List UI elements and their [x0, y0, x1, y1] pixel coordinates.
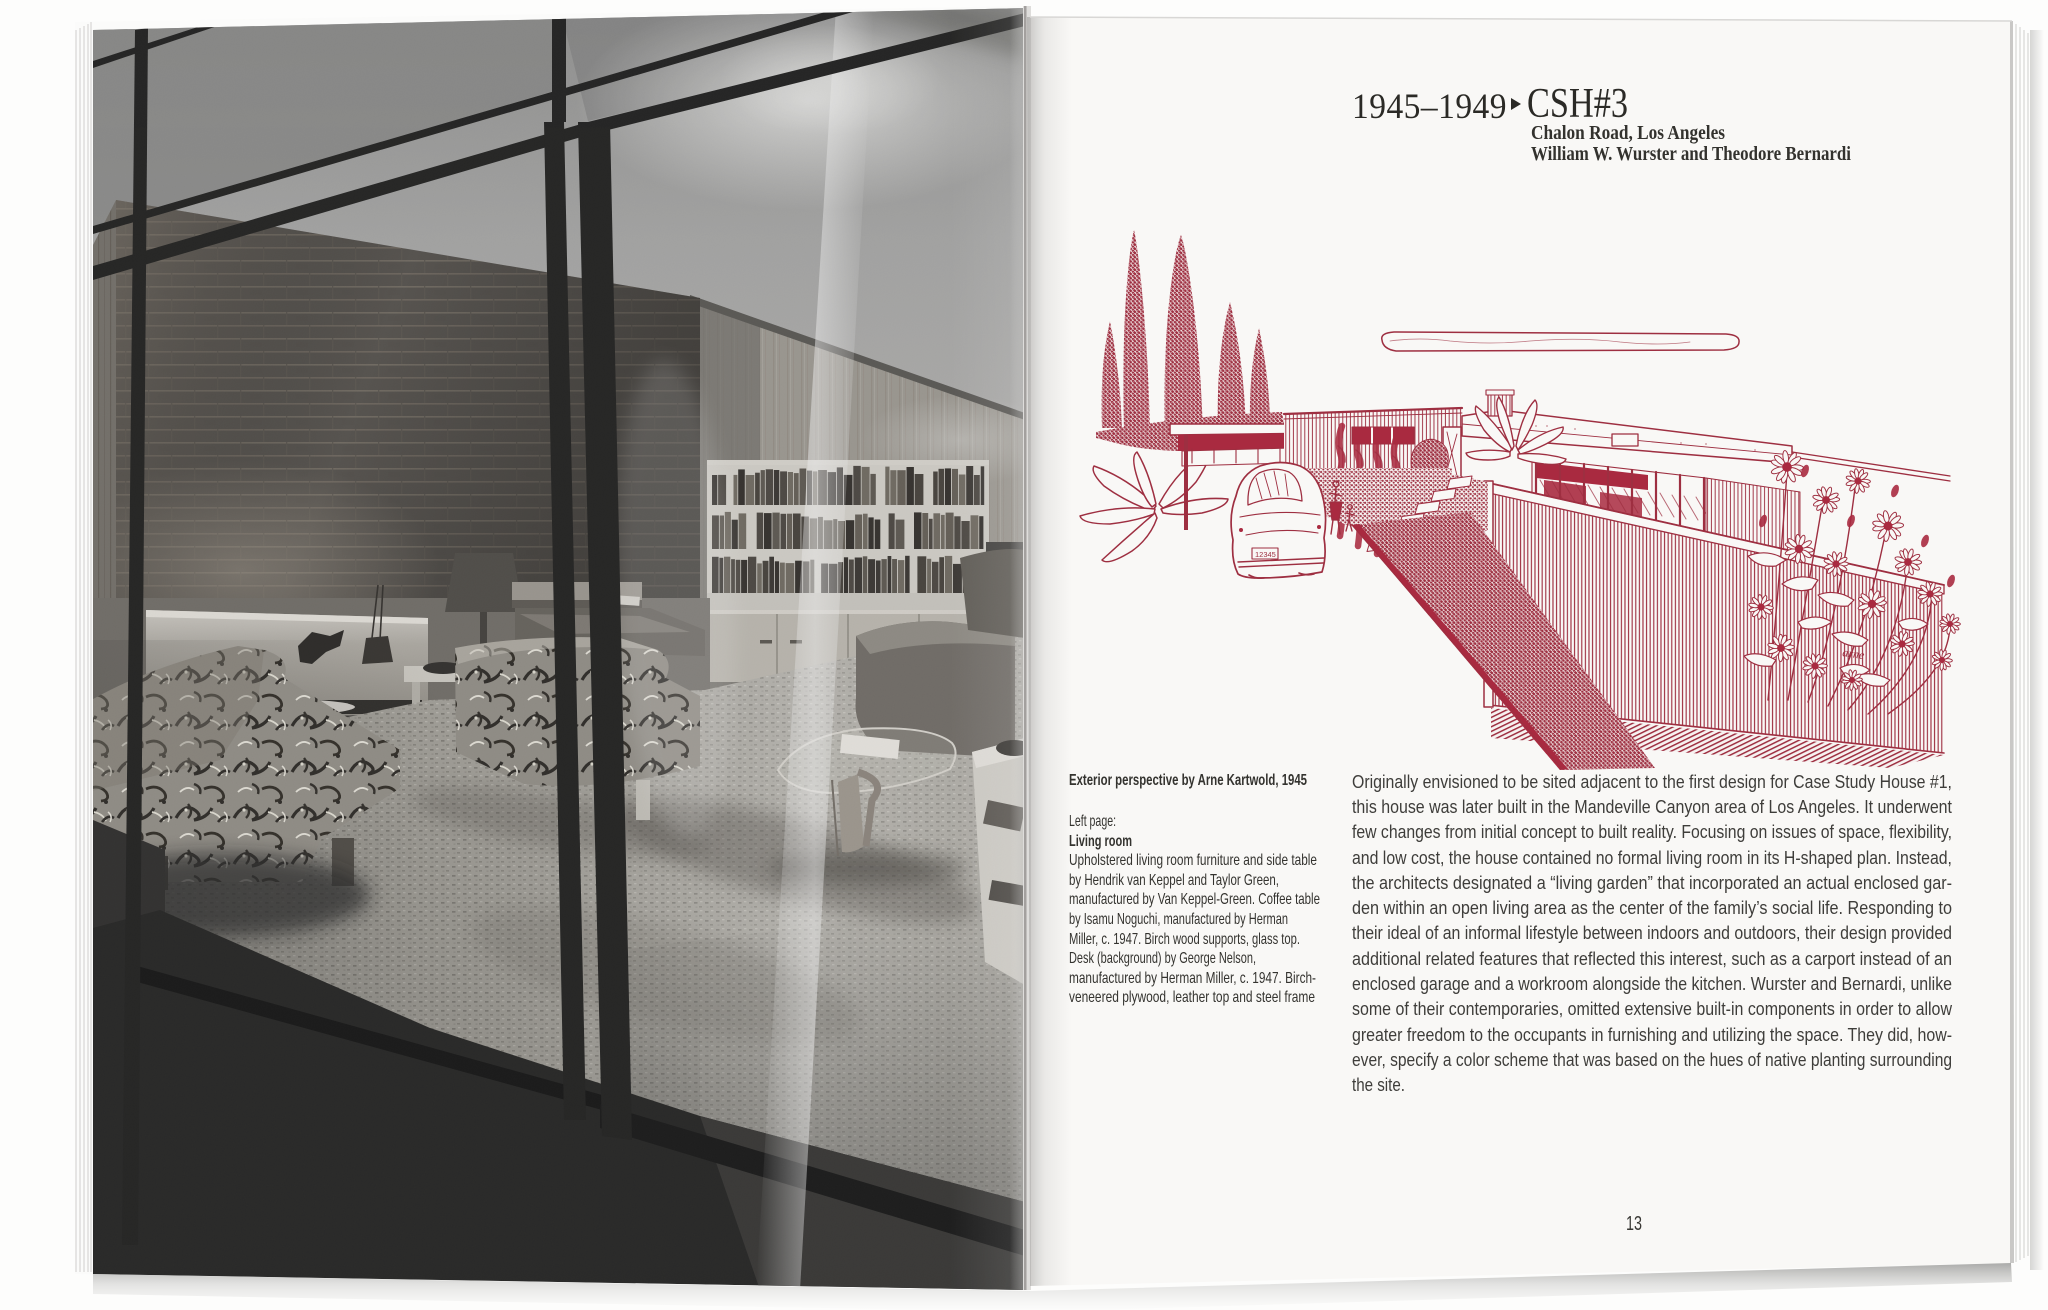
svg-text:12345: 12345 [1255, 550, 1276, 559]
